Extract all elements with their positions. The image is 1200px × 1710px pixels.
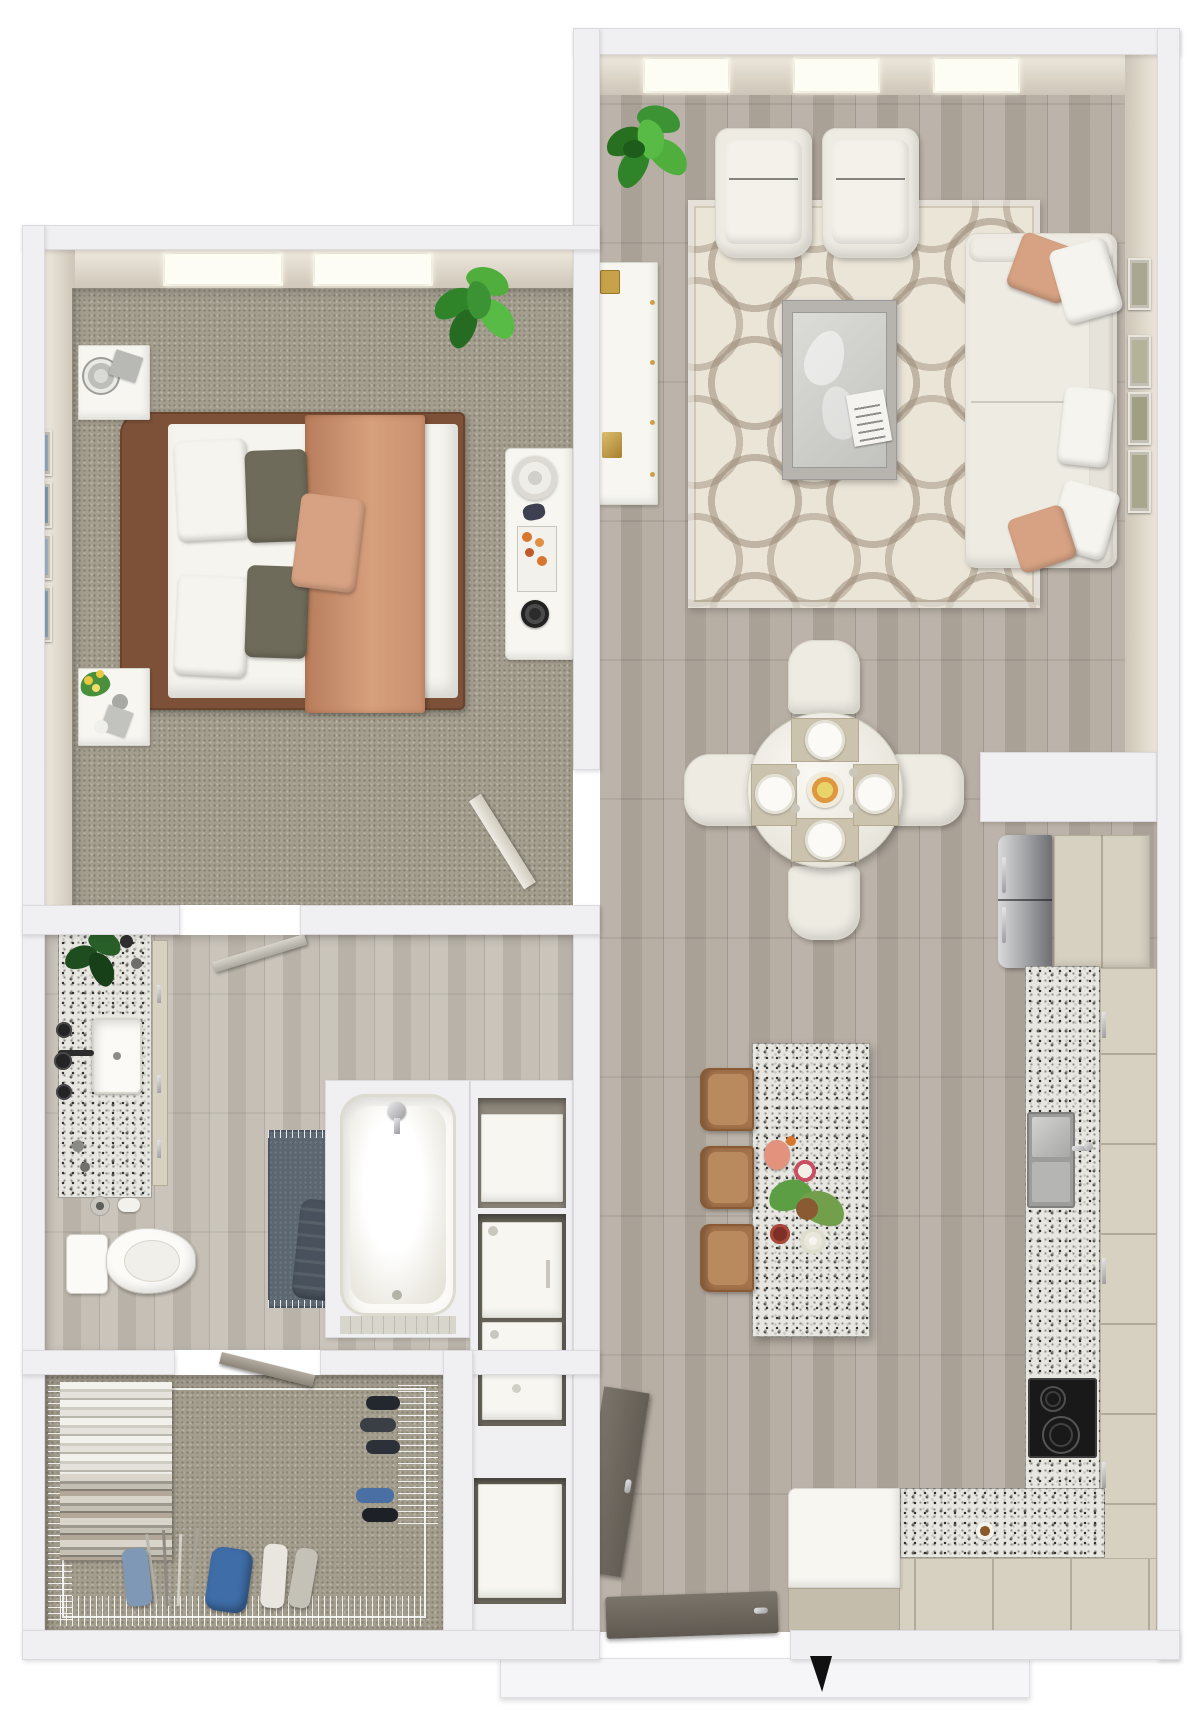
media-console <box>597 262 658 505</box>
dining-chair-top <box>788 640 860 714</box>
storage-cabinet <box>478 1484 562 1598</box>
washer <box>482 1222 562 1318</box>
nightstand-top <box>78 345 150 420</box>
armchair-left <box>715 128 812 258</box>
shower-floor-strip <box>340 1316 456 1334</box>
wall-leftwing-top <box>22 225 600 250</box>
bedroom-window <box>163 252 283 286</box>
kitchen-peninsula-face <box>788 1588 900 1632</box>
plate <box>755 774 795 814</box>
dresser-hat <box>513 456 557 500</box>
stored-item <box>260 1543 288 1609</box>
wire-shelf-right-rail <box>398 1384 438 1524</box>
toilet-paper-holder <box>118 1198 140 1212</box>
wall-bed-bath-divider-b <box>300 905 600 935</box>
console-decor-gold <box>602 432 622 458</box>
bar-stool <box>700 1068 754 1131</box>
storage-niche <box>474 1478 566 1604</box>
hanging-clothes <box>60 1382 172 1474</box>
shoe-pair <box>356 1488 394 1503</box>
folded-stacks <box>60 1474 172 1560</box>
sofa-pillow-white <box>1057 386 1115 469</box>
kitchen-counter-bottom <box>900 1488 1105 1558</box>
console-decor-gold <box>600 270 620 294</box>
armchair-right <box>822 128 919 258</box>
toilet-tank <box>66 1234 108 1294</box>
bedroom-plant-icon <box>426 262 522 354</box>
bed-pillow <box>173 438 250 542</box>
bathtub <box>340 1094 456 1316</box>
wall-closet-laundry-divider <box>443 1350 473 1632</box>
golf-bag <box>204 1545 254 1614</box>
vanity-handle <box>157 1075 161 1093</box>
shoe-pair <box>366 1440 400 1454</box>
bar-stool <box>700 1146 754 1209</box>
kitchen-cabinet-face-right <box>1100 968 1157 1593</box>
faucet-knob <box>54 1052 72 1070</box>
kitchen-peninsula <box>788 1488 900 1588</box>
vanity-handle <box>157 1140 161 1158</box>
entry-door-leaf <box>605 1591 778 1639</box>
plate <box>805 720 845 760</box>
wall-art-icon <box>1128 450 1151 513</box>
ceiling-light-panel <box>933 57 1020 93</box>
cooktop <box>1028 1378 1097 1458</box>
wall-art-icon <box>1128 335 1151 388</box>
washer-niche <box>478 1214 566 1426</box>
ceiling-light-panel <box>643 57 730 93</box>
door-handle <box>624 1479 632 1494</box>
floor-plan-canvas <box>0 0 1200 1710</box>
cabinet-handle <box>1102 1462 1106 1488</box>
plate <box>805 820 845 860</box>
bathroom-sink <box>92 1018 142 1094</box>
plate <box>855 774 895 814</box>
bed-accent-pillow <box>291 492 366 593</box>
dresser <box>505 448 573 660</box>
cabinet-handle <box>1102 1012 1106 1038</box>
fridge-handle <box>1002 907 1006 943</box>
dining-chair-bottom <box>788 866 860 940</box>
room-entry-threshold-platform <box>500 1658 1030 1698</box>
wall-leftwing-left <box>22 225 45 1655</box>
dresser-tray <box>517 526 557 592</box>
wall-shared-upper <box>573 28 600 770</box>
bedroom-window <box>313 252 433 286</box>
bed-pillow <box>173 574 250 678</box>
wall-bath-closet-divider-a <box>22 1350 175 1375</box>
island-centerpiece <box>756 1128 866 1268</box>
toilet <box>66 1228 198 1300</box>
console-knob <box>650 420 655 425</box>
wall-bottom-right <box>790 1630 1180 1660</box>
linen-niche <box>478 1098 566 1208</box>
wall-bed-bath-divider-a <box>22 905 180 935</box>
faucet-knob <box>56 1084 72 1100</box>
console-knob <box>650 472 655 477</box>
wall-art-icon <box>1128 258 1151 310</box>
wall-art-icon <box>1128 392 1151 445</box>
linen-shelf-box <box>481 1114 563 1202</box>
dining-table <box>747 712 903 868</box>
coffee-table <box>782 300 897 480</box>
door-handle <box>754 1607 768 1613</box>
fruit-bowl <box>807 772 843 808</box>
kitchen-nook-wall <box>980 752 1157 822</box>
pantry-cabinet <box>1054 835 1150 968</box>
ceiling-light-panel <box>793 57 880 93</box>
wall-rightwing-right <box>1157 28 1180 1660</box>
shoe-pair <box>362 1508 398 1522</box>
wall-shared-lower <box>573 905 600 1632</box>
console-knob <box>650 300 655 305</box>
kitchen-sink <box>1027 1112 1075 1208</box>
bar-stool <box>700 1224 754 1292</box>
nightstand-bottom <box>78 668 150 746</box>
kitchen-faucet-base <box>1084 1142 1093 1151</box>
console-knob <box>650 360 655 365</box>
wall-bottom-left <box>22 1630 600 1660</box>
shoe-pair <box>366 1396 400 1410</box>
shoe-pair <box>360 1418 396 1432</box>
faucet-knob <box>56 1022 72 1038</box>
vanity-handle <box>157 985 161 1003</box>
cabinet-handle <box>1102 1258 1106 1284</box>
refrigerator <box>998 835 1052 968</box>
wall-rightwing-top <box>573 28 1180 55</box>
sofa <box>965 233 1117 568</box>
living-room-plant-icon <box>597 98 693 194</box>
fridge-handle <box>1002 857 1006 893</box>
